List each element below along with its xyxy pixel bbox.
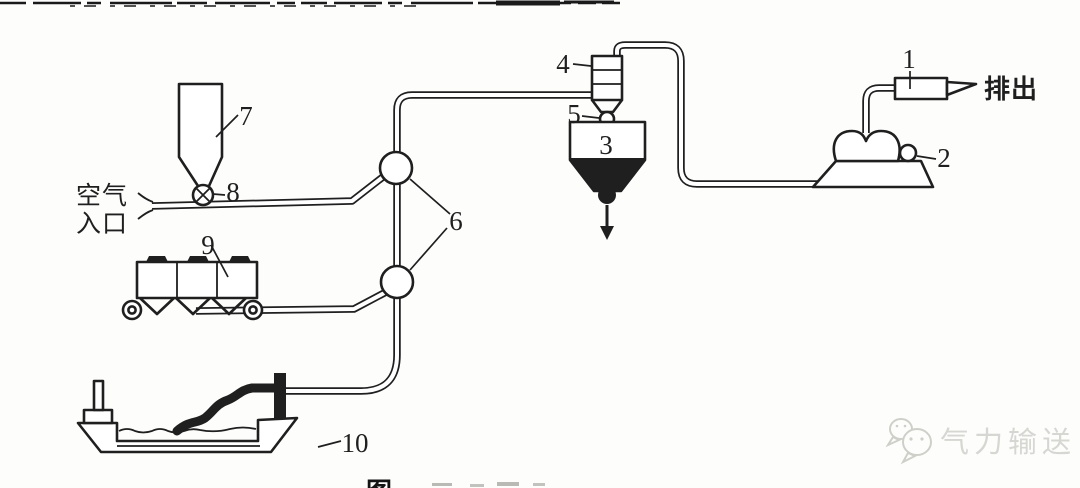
pneumatic-conveying-diagram: 1 2 3 4 5 6 7 8 9 10 空气 入口 排出 [0,0,1080,488]
caption-faint-glyph-top [432,483,452,486]
upper-diverter-valve [380,152,412,184]
callout-4: 4 [556,49,570,79]
callout-5: 5 [567,99,581,129]
barge-funnel-base [84,410,112,423]
caption-faint-glyph-top [533,483,545,486]
relief-valve [900,145,916,161]
callout-6: 6 [449,206,463,236]
caption-faint-glyph-top [470,484,484,487]
air-inlet-label-line1: 空气 [76,182,128,210]
caption-figure-char: 图 [366,478,392,488]
rotary-feeder-valve [193,185,213,205]
lower-diverter-valve [381,266,413,298]
suction-standpipe [274,373,286,419]
paper-background [0,0,1080,488]
callout-10: 10 [342,428,369,458]
callout-2: 2 [937,143,951,173]
leader-8 [213,194,225,195]
callout-3: 3 [599,130,613,160]
railcar-wheel-hub [249,306,256,313]
callout-7: 7 [239,101,253,131]
watermark-text: 气力输送 [940,426,1076,459]
railcar-hatch [146,256,168,262]
silo-outlet-stub [598,186,616,204]
railcar-body [137,262,257,298]
callout-1: 1 [902,44,916,74]
discharge-label: 排出 [984,74,1038,104]
scan-artifact-top-line [0,2,620,6]
air-inlet-label-line2: 入口 [76,210,128,238]
railcar-hatch [229,256,251,262]
railcar-wheel-hub [128,306,135,313]
caption-faint-glyph-top [497,482,519,486]
blower-base [813,161,933,187]
scanned-diagram-page: 1 2 3 4 5 6 7 8 9 10 空气 入口 排出 [0,0,1080,488]
barge-funnel-stack [94,381,103,410]
callout-9: 9 [201,230,215,260]
callout-8: 8 [226,177,240,207]
